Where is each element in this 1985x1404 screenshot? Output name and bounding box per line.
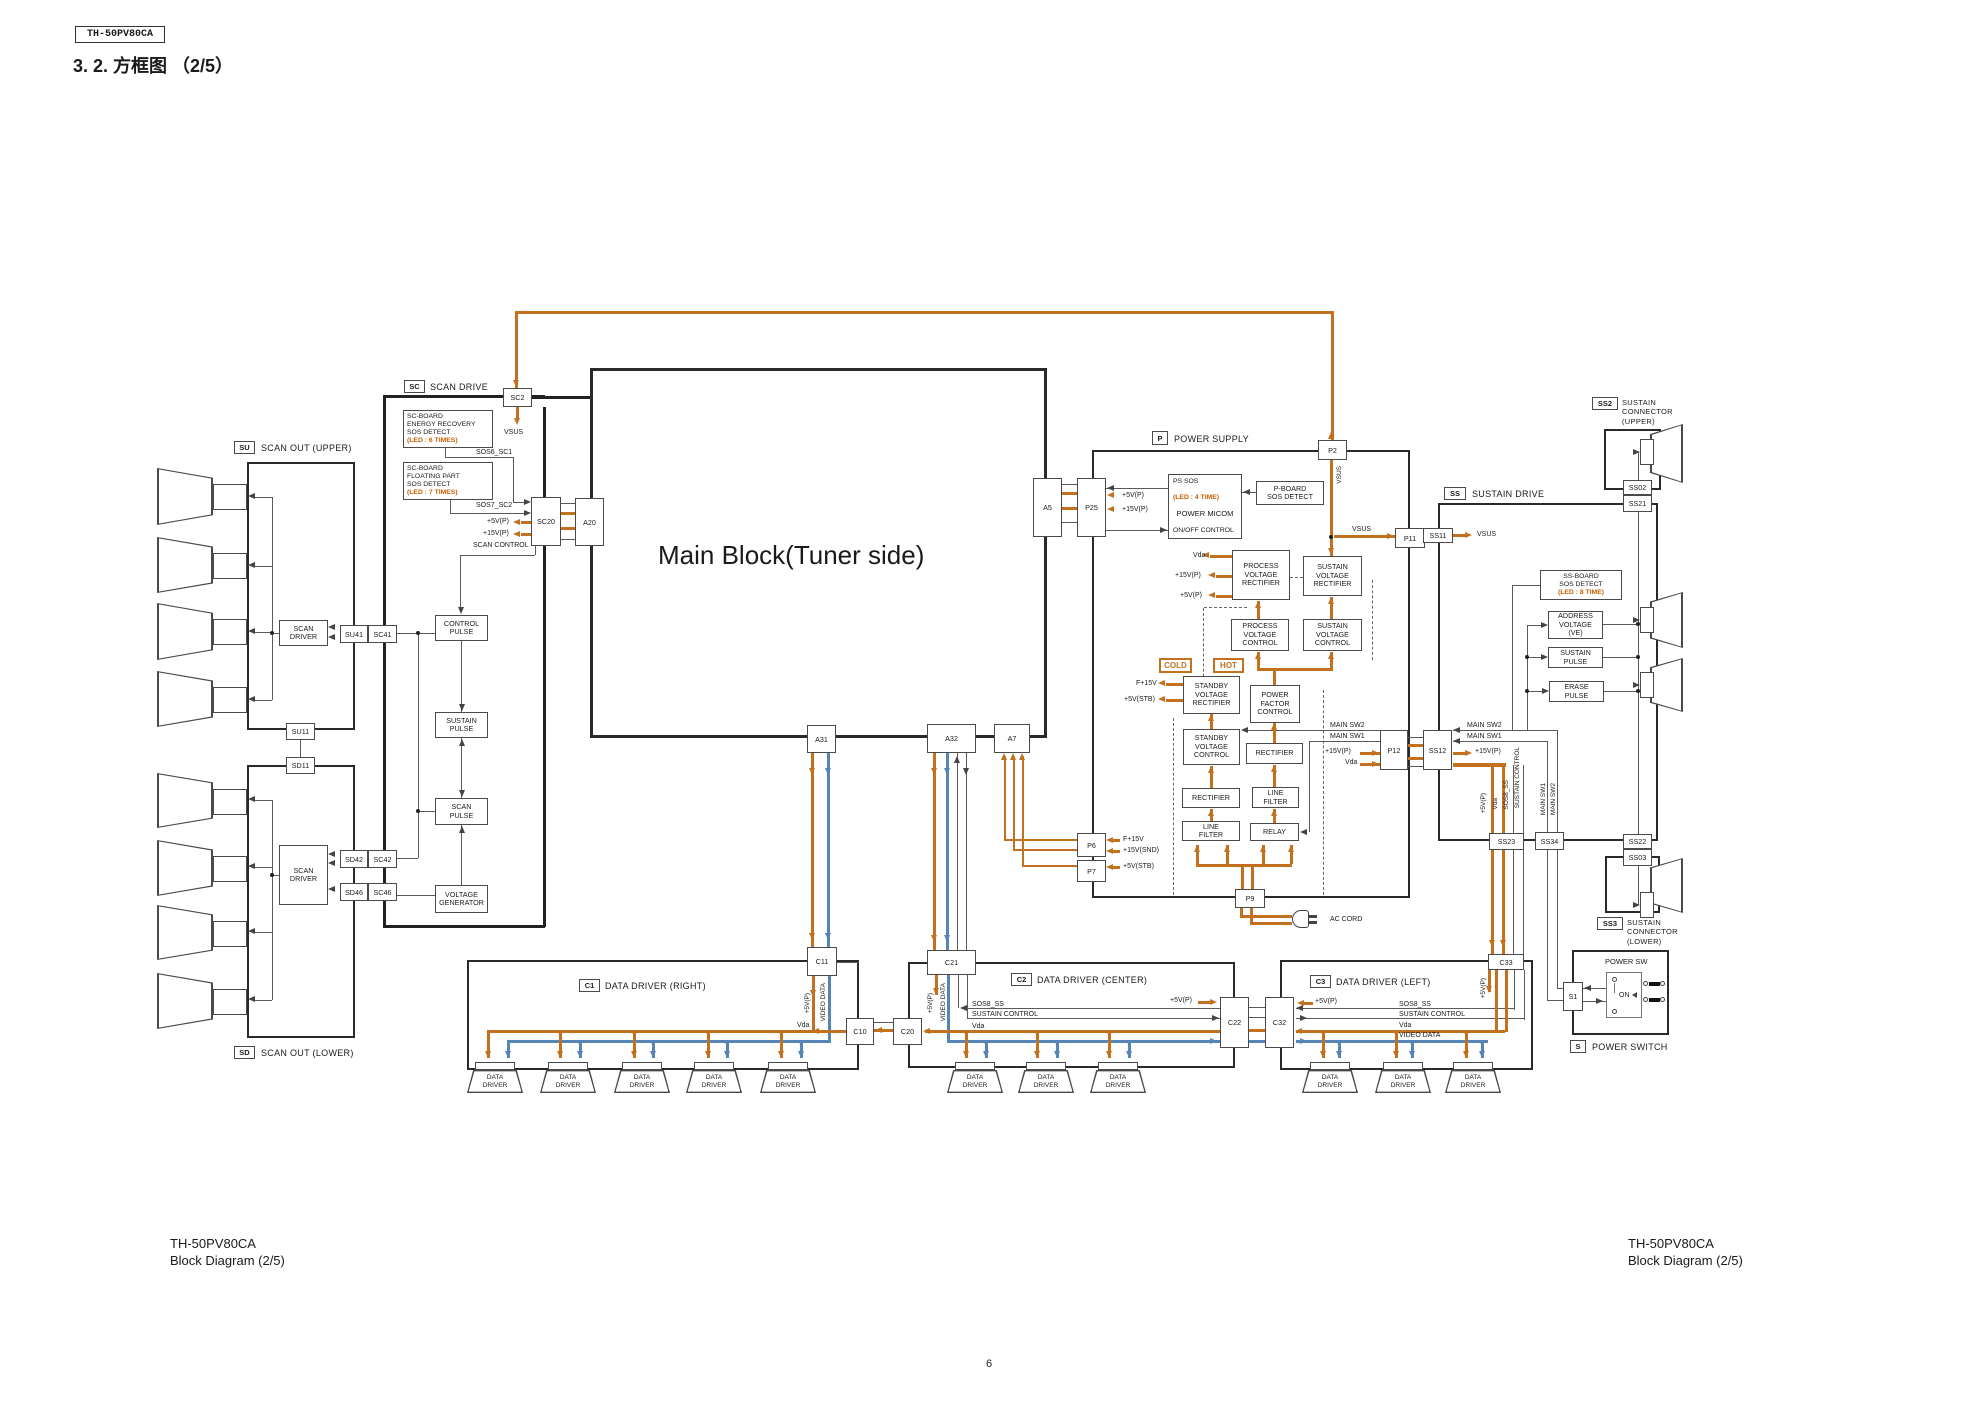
connector-p2: P2 xyxy=(1318,440,1347,460)
section-tag-sc: SC xyxy=(404,380,425,393)
panel-connector xyxy=(1640,892,1654,918)
signal-5vstb-p7: +5V(STB) xyxy=(1123,863,1154,870)
connector-ss23: SS23 xyxy=(1489,833,1524,850)
led-count: (LED : 6 TIMES) xyxy=(407,437,489,445)
line-filter-block-upper: LINE FILTER xyxy=(1252,787,1299,808)
signal-5vp-c32: +5V(P) xyxy=(1315,998,1337,1005)
panel-connector xyxy=(1640,607,1654,633)
data-driver-ic-pad xyxy=(1098,1062,1138,1070)
data-driver-ic-pad xyxy=(955,1062,995,1070)
connector-a7: A7 xyxy=(994,724,1030,753)
section-label-data-driver-right: DATA DRIVER (RIGHT) xyxy=(605,981,706,992)
panel-electrode-shape xyxy=(157,537,213,593)
section-label-data-driver-center: DATA DRIVER (CENTER) xyxy=(1037,975,1147,986)
line-filter-block-lower: LINE FILTER xyxy=(1182,821,1240,841)
section-tag-c1: C1 xyxy=(579,979,600,992)
connector-p12: P12 xyxy=(1380,730,1408,770)
scan-out-upper-board xyxy=(247,462,355,730)
section-label-sustain-connector-upper: SUSTAIN CONNECTOR (UPPER) xyxy=(1622,398,1673,426)
connector-sc2: SC2 xyxy=(503,388,532,407)
panel-electrode-shape xyxy=(1650,858,1683,913)
data-driver-ic: DATA DRIVER xyxy=(467,1070,523,1093)
data-driver-ic-pad xyxy=(548,1062,588,1070)
signal-main-sw1-ss: MAIN SW1 xyxy=(1467,733,1502,740)
signal-15vp-pvr: +15V(P) xyxy=(1175,572,1201,579)
section-label-power-switch: POWER SWITCH xyxy=(1592,1042,1668,1053)
section-tag-ss3: SS3 xyxy=(1597,917,1623,930)
connector-c33: C33 xyxy=(1488,954,1524,970)
signal-scan-control: SCAN CONTROL xyxy=(473,542,529,549)
connector-a20: A20 xyxy=(575,498,604,546)
section-tag-s: S xyxy=(1570,1040,1586,1053)
data-driver-ic-pad xyxy=(1310,1062,1350,1070)
switch-contact-icon xyxy=(1612,977,1617,982)
panel-electrode-shape xyxy=(157,840,213,896)
section-tag-ss: SS xyxy=(1444,487,1466,500)
connector-a31: A31 xyxy=(807,725,836,753)
connector-a32: A32 xyxy=(927,724,976,753)
data-driver-ic-pad xyxy=(475,1062,515,1070)
section-tag-c3: C3 xyxy=(1310,975,1331,988)
panel-electrode-shape xyxy=(157,973,213,1029)
signal-vda-c2: Vda xyxy=(972,1023,984,1030)
signal-sos8-vertical: SOS8_SS xyxy=(1503,780,1510,810)
erase-pulse-block: ERASE PULSE xyxy=(1549,681,1604,702)
signal-video-data-c11: VIDEO DATA xyxy=(820,983,827,1021)
data-driver-ic: DATA DRIVER xyxy=(1375,1070,1431,1093)
signal-main-sw1-vertical: MAIN SW1 xyxy=(1540,783,1547,815)
section-label-sustain-drive: SUSTAIN DRIVE xyxy=(1472,489,1544,500)
panel-electrode-shape xyxy=(157,671,213,727)
connector-c22: C22 xyxy=(1220,997,1249,1048)
rectifier-block-lower: RECTIFIER xyxy=(1182,788,1240,808)
signal-15vp-ss12: +15V(P) xyxy=(1475,748,1501,755)
on-off-control-label: ON/OFF CONTROL xyxy=(1173,527,1237,535)
signal-5vp-p25: +5V(P) xyxy=(1122,492,1144,499)
signal-ac-cord: AC CORD xyxy=(1330,916,1362,923)
signal-5vp-c33: +5V(P) xyxy=(1480,978,1487,998)
process-voltage-control-block: PROCESS VOLTAGE CONTROL xyxy=(1231,619,1289,651)
section-label-scan-drive: SCAN DRIVE xyxy=(430,382,488,393)
connector-ss03: SS03 xyxy=(1623,849,1652,866)
panel-connector xyxy=(1640,439,1654,465)
rectifier-block-mid: RECTIFIER xyxy=(1246,743,1303,764)
data-driver-ic: DATA DRIVER xyxy=(1445,1070,1501,1093)
switch-contact-icon xyxy=(1643,981,1648,986)
connector-c11: C11 xyxy=(807,947,837,976)
control-pulse-block: CONTROL PULSE xyxy=(435,615,488,641)
ps-sos-label: PS SOS xyxy=(1173,478,1237,486)
data-driver-ic: DATA DRIVER xyxy=(1090,1070,1146,1093)
connector-ss22: SS22 xyxy=(1623,834,1652,849)
voltage-generator-block: VOLTAGE GENERATOR xyxy=(435,885,488,913)
signal-main-sw2-vertical: MAIN SW2 xyxy=(1550,783,1557,815)
scan-driver-upper-block: SCAN DRIVER xyxy=(279,620,328,646)
address-voltage-block: ADDRESS VOLTAGE (VE) xyxy=(1548,611,1603,639)
connector-sc46: SC46 xyxy=(368,883,397,901)
sustain-pulse-block-sc: SUSTAIN PULSE xyxy=(435,712,488,738)
connector-sd46: SD46 xyxy=(340,883,368,901)
scan-pulse-block: SCAN PULSE xyxy=(435,798,488,825)
data-driver-ic-pad xyxy=(768,1062,808,1070)
switch-contact-icon xyxy=(1660,981,1665,986)
data-driver-ic-pad xyxy=(1026,1062,1066,1070)
signal-15vp: +15V(P) xyxy=(483,530,509,537)
signal-5vp-pvr: +5V(P) xyxy=(1180,592,1202,599)
signal-sos7: SOS7_SC2 xyxy=(476,502,512,509)
connector-sc41: SC41 xyxy=(368,625,397,643)
signal-video-data-c3: VIDEO DATA xyxy=(1399,1032,1440,1039)
connector-su41: SU41 xyxy=(340,625,368,643)
service-manual-page: TH-50PV80CA 3. 2. 方框图 （2/5） SU SCAN OUT … xyxy=(0,0,1985,1404)
sustain-voltage-rectifier-block: SUSTAIN VOLTAGE RECTIFIER xyxy=(1303,556,1362,596)
switch-contact-icon xyxy=(1660,997,1665,1002)
data-driver-ic-pad xyxy=(694,1062,734,1070)
panel-connector xyxy=(213,921,247,947)
section-label-scan-out-upper: SCAN OUT (UPPER) xyxy=(261,443,352,454)
connector-c20: C20 xyxy=(893,1018,922,1045)
signal-5vp-vertical: +5V(P) xyxy=(1480,793,1487,813)
section-tag-ss2: SS2 xyxy=(1592,397,1618,410)
connector-ss34: SS34 xyxy=(1535,832,1564,850)
sc-floating-part-sos-detect-block: SC-BOARD FLOATING PART SOS DETECT (LED :… xyxy=(403,462,493,500)
connector-sc42: SC42 xyxy=(368,850,397,868)
panel-electrode-shape xyxy=(157,468,213,525)
led-count: (LED : 4 TIME) xyxy=(1173,494,1237,502)
switch-on-label: ON xyxy=(1619,992,1630,999)
signal-f15v: F+15V xyxy=(1136,680,1157,687)
signal-vsus-ss11: VSUS xyxy=(1477,531,1496,538)
main-block-label: Main Block(Tuner side) xyxy=(658,540,924,571)
data-driver-ic: DATA DRIVER xyxy=(947,1070,1003,1093)
led-count: (LED : 7 TIMES) xyxy=(407,489,489,497)
connector-sc20: SC20 xyxy=(531,497,561,546)
section-tag-sd: SD xyxy=(234,1046,255,1059)
signal-vda-c3: Vda xyxy=(1399,1022,1411,1029)
signal-vsus-vertical: VSUS xyxy=(1336,466,1343,484)
section-label-scan-out-lower: SCAN OUT (LOWER) xyxy=(261,1048,354,1059)
data-driver-ic: DATA DRIVER xyxy=(1302,1070,1358,1093)
ss-board-sos-detect-block: SS-BOARD SOS DETECT (LED : 8 TIME) xyxy=(1540,570,1622,600)
section-label-sustain-connector-lower: SUSTAIN CONNECTOR (LOWER) xyxy=(1627,918,1678,946)
signal-15vsnd: +15V(SND) xyxy=(1123,847,1159,854)
model-tag: TH-50PV80CA xyxy=(75,26,165,43)
panel-connector xyxy=(213,484,247,510)
data-driver-ic: DATA DRIVER xyxy=(614,1070,670,1093)
cold-label: COLD xyxy=(1159,658,1192,673)
page-title: 3. 2. 方框图 （2/5） xyxy=(73,52,233,78)
panel-connector xyxy=(213,619,247,645)
connector-su11: SU11 xyxy=(286,723,315,740)
signal-15vp-p12: +15V(P) xyxy=(1325,748,1351,755)
panel-connector xyxy=(213,989,247,1015)
signal-sustain-control-vertical: SUSTAIN CONTROL xyxy=(1514,747,1521,808)
sustain-pulse-block-ss: SUSTAIN PULSE xyxy=(1548,647,1603,668)
connector-p11: P11 xyxy=(1395,528,1425,548)
panel-electrode-shape xyxy=(1650,592,1683,648)
ac-plug-icon xyxy=(1292,910,1309,928)
signal-main-sw2-p: MAIN SW2 xyxy=(1330,722,1365,729)
section-tag-p: P xyxy=(1152,431,1168,445)
power-micom-block: PS SOS (LED : 4 TIME) POWER MICOM ON/OFF… xyxy=(1168,474,1242,539)
signal-video-data-c21: VIDEO DATA xyxy=(940,983,947,1021)
signal-15vp-p25: +15V(P) xyxy=(1122,506,1148,513)
footer-right: TH-50PV80CABlock Diagram (2/5) xyxy=(1628,1236,1743,1270)
signal-5vp-c11: +5V(P) xyxy=(804,993,811,1013)
power-factor-control-block: POWER FACTOR CONTROL xyxy=(1250,685,1300,723)
panel-connector xyxy=(213,789,247,815)
panel-electrode-shape xyxy=(1650,658,1683,712)
connector-s1: S1 xyxy=(1563,982,1583,1011)
hot-label: HOT xyxy=(1213,658,1244,673)
connector-ss02: SS02 xyxy=(1623,480,1652,495)
section-tag-su: SU xyxy=(234,441,255,454)
sustain-voltage-control-block: SUSTAIN VOLTAGE CONTROL xyxy=(1303,619,1362,651)
data-driver-ic: DATA DRIVER xyxy=(760,1070,816,1093)
signal-5vp-c21: +5V(P) xyxy=(927,993,934,1013)
panel-connector xyxy=(213,687,247,713)
section-label-data-driver-left: DATA DRIVER (LEFT) xyxy=(1336,977,1431,988)
standby-voltage-control-block: STANDBY VOLTAGE CONTROL xyxy=(1183,729,1240,765)
p-board-sos-detect-block: P-BOARD SOS DETECT xyxy=(1256,481,1324,505)
data-driver-ic: DATA DRIVER xyxy=(686,1070,742,1093)
panel-connector xyxy=(213,856,247,882)
scan-driver-lower-block: SCAN DRIVER xyxy=(279,845,328,905)
connector-p9: P9 xyxy=(1235,889,1265,908)
signal-vda-p12: Vda xyxy=(1345,759,1357,766)
signal-sos8-c2: SOS8_SS xyxy=(972,1001,1004,1008)
signal-main-sw1-p: MAIN SW1 xyxy=(1330,733,1365,740)
signal-vsus: VSUS xyxy=(504,429,523,436)
connector-sd42: SD42 xyxy=(340,850,368,868)
signal-sustain-control-c3: SUSTAIN CONTROL xyxy=(1399,1011,1465,1018)
signal-vda-c1: Vda xyxy=(797,1022,809,1029)
signal-5vp-c22: +5V(P) xyxy=(1170,997,1192,1004)
connector-a5: A5 xyxy=(1033,478,1062,537)
page-number: 6 xyxy=(986,1358,992,1370)
data-driver-ic: DATA DRIVER xyxy=(540,1070,596,1093)
panel-connector xyxy=(1640,672,1654,698)
signal-5vstb: +5V(STB) xyxy=(1124,696,1155,703)
data-driver-ic-pad xyxy=(622,1062,662,1070)
signal-vda-vertical: Vda xyxy=(1492,798,1499,810)
process-voltage-rectifier-block: PROCESS VOLTAGE RECTIFIER xyxy=(1232,550,1290,600)
panel-electrode-shape xyxy=(1650,424,1683,483)
signal-sustain-control-c2: SUSTAIN CONTROL xyxy=(972,1011,1038,1018)
connector-ss21: SS21 xyxy=(1623,495,1652,512)
signal-5vp: +5V(P) xyxy=(487,518,509,525)
signal-main-sw2-ss: MAIN SW2 xyxy=(1467,722,1502,729)
section-label-power-supply: POWER SUPPLY xyxy=(1174,434,1249,445)
connector-c10: C10 xyxy=(846,1018,874,1045)
connector-ss12: SS12 xyxy=(1423,730,1452,770)
connector-p6: P6 xyxy=(1077,833,1106,857)
panel-electrode-shape xyxy=(157,905,213,960)
panel-connector xyxy=(213,553,247,579)
section-tag-c2: C2 xyxy=(1011,973,1032,986)
connector-ss11: SS11 xyxy=(1423,528,1453,543)
connector-p25: P25 xyxy=(1077,478,1106,537)
connector-c21: C21 xyxy=(927,950,976,975)
panel-electrode-shape xyxy=(157,773,213,828)
relay-block: RELAY xyxy=(1250,823,1299,841)
connector-sd11: SD11 xyxy=(286,757,315,774)
led-count: (LED : 8 TIME) xyxy=(1558,589,1604,597)
model-tag-label: TH-50PV80CA xyxy=(87,29,153,40)
panel-electrode-shape xyxy=(157,603,213,660)
signal-sos6: SOS6_SC1 xyxy=(476,449,512,456)
signal-vda-pvr: Vda xyxy=(1193,552,1205,559)
sc-energy-recovery-sos-detect-block: SC-BOARD ENERGY RECOVERY SOS DETECT (LED… xyxy=(403,410,493,448)
standby-voltage-rectifier-block: STANDBY VOLTAGE RECTIFIER xyxy=(1183,676,1240,714)
data-driver-ic-pad xyxy=(1383,1062,1423,1070)
data-driver-ic: DATA DRIVER xyxy=(1018,1070,1074,1093)
signal-f15v-p6: F+15V xyxy=(1123,836,1144,843)
signal-sos8-c3: SOS8_SS xyxy=(1399,1001,1431,1008)
power-sw-label: POWER SW xyxy=(1605,958,1648,966)
data-driver-ic-pad xyxy=(1453,1062,1493,1070)
switch-contact-icon xyxy=(1612,1009,1617,1014)
connector-p7: P7 xyxy=(1077,860,1106,882)
switch-arrow-icon xyxy=(1632,992,1637,998)
signal-vsus-to-p11: VSUS xyxy=(1352,526,1371,533)
switch-contact-icon xyxy=(1643,997,1648,1002)
footer-left: TH-50PV80CABlock Diagram (2/5) xyxy=(170,1236,285,1270)
connector-c32: C32 xyxy=(1265,997,1294,1048)
